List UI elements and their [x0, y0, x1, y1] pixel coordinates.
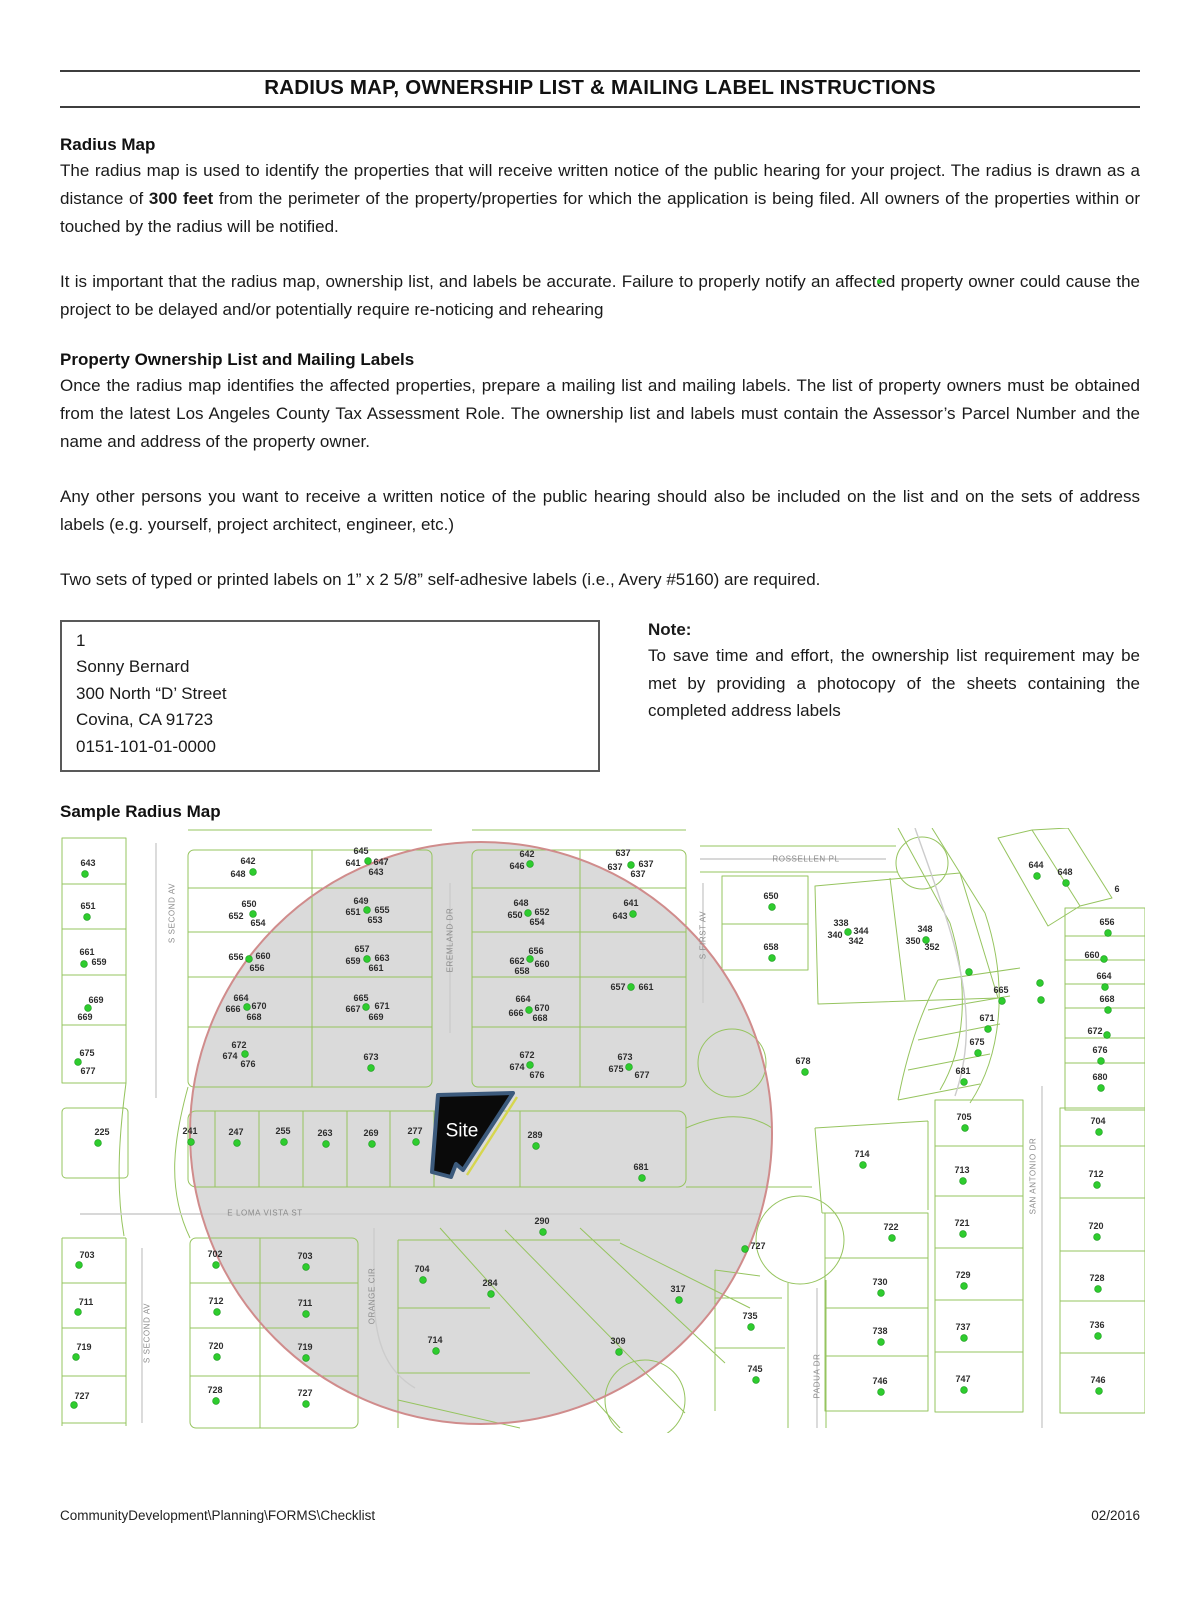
radius-map-para2: It is important that the radius map, own…	[60, 268, 1140, 324]
parcel-label: 712	[208, 1296, 223, 1306]
parcel-label: 712	[1088, 1169, 1103, 1179]
parcel-label: 720	[208, 1341, 223, 1351]
parcel-dot	[413, 1139, 420, 1146]
parcel-dot	[1098, 1058, 1105, 1065]
parcel-dot	[364, 907, 371, 914]
parcel-label: 661	[638, 982, 653, 992]
parcel-label: 681	[633, 1162, 648, 1172]
parcel-label: 255	[275, 1126, 290, 1136]
parcel-label: 673	[617, 1052, 632, 1062]
ownership-heading: Property Ownership List and Mailing Labe…	[60, 350, 1140, 370]
parcel-label: 661	[368, 963, 383, 973]
parcel-label: 344	[853, 926, 868, 936]
parcel-label: 702	[207, 1249, 222, 1259]
ownership-para1: Once the radius map identifies the affec…	[60, 372, 1140, 456]
label-line-number: 1	[76, 628, 584, 655]
parcel-dot	[999, 998, 1006, 1005]
street-label: PADUA DR	[813, 1354, 822, 1399]
parcel-label: 664	[515, 994, 530, 1004]
label-line-apn: 0151-101-01-0000	[76, 734, 584, 761]
parcel-label: 643	[612, 911, 627, 921]
parcel-dot	[71, 1402, 78, 1409]
parcel-label: 643	[368, 867, 383, 877]
parcel-label: 650	[241, 899, 256, 909]
parcel-dot	[488, 1291, 495, 1298]
radius-map-heading: Radius Map	[60, 135, 1140, 155]
footer-date: 02/2016	[1091, 1508, 1140, 1523]
parcel-dot	[303, 1355, 310, 1362]
parcel-label: 672	[231, 1040, 246, 1050]
street-label: S FIRST AV	[699, 911, 708, 959]
parcel-label: 637	[615, 848, 630, 858]
parcel-label: 269	[363, 1128, 378, 1138]
parcel-dot	[845, 929, 852, 936]
parcel-label: 647	[373, 857, 388, 867]
parcel-dot	[84, 914, 91, 921]
street-label: S SECOND AV	[143, 1303, 152, 1363]
document-page: RADIUS MAP, OWNERSHIP LIST & MAILING LAB…	[0, 70, 1200, 1433]
parcel-label: 703	[79, 1250, 94, 1260]
parcel-dot	[1101, 956, 1108, 963]
parcel-dot	[303, 1401, 310, 1408]
parcel-label: 637	[607, 862, 622, 872]
parcel-label: 746	[872, 1376, 887, 1386]
parcel-label: 714	[427, 1335, 442, 1345]
parcel-label: 663	[374, 953, 389, 963]
parcel-dot	[323, 1141, 330, 1148]
parcel-dot	[1094, 1234, 1101, 1241]
ownership-para3: Two sets of typed or printed labels on 1…	[60, 566, 1140, 594]
sample-radius-map: Site S SECOND AVEREMLAND DRS FIRST AVROS…	[60, 828, 1145, 1433]
parcel-dot	[368, 1065, 375, 1072]
parcel-label: 719	[76, 1342, 91, 1352]
parcel-dot	[1105, 1007, 1112, 1014]
parcel-dot	[527, 861, 534, 868]
parcel-dot	[250, 869, 257, 876]
parcel-dot	[242, 1051, 249, 1058]
parcel-label: 648	[1057, 867, 1072, 877]
parcel-dot	[878, 1339, 885, 1346]
para1-post: from the perimeter of the property/prope…	[60, 189, 1140, 236]
parcel-label: 660	[534, 959, 549, 969]
parcel-label: 714	[854, 1149, 869, 1159]
parcel-label: 670	[251, 1001, 266, 1011]
parcel-dot	[1095, 1286, 1102, 1293]
parcel-dot	[234, 1140, 241, 1147]
parcel-label: 646	[509, 861, 524, 871]
parcel-label: 642	[519, 849, 534, 859]
parcel-label: 674	[509, 1062, 524, 1072]
parcel-label: 660	[1084, 950, 1099, 960]
parcel-label: 263	[317, 1128, 332, 1138]
parcel-label: 721	[954, 1218, 969, 1228]
parcel-label: 637	[638, 859, 653, 869]
street-label: EREMLAND DR	[446, 908, 455, 973]
parcel-label: 678	[795, 1056, 810, 1066]
parcel-dot	[960, 1231, 967, 1238]
parcel-label: 309	[610, 1336, 625, 1346]
parcel-dot	[860, 1162, 867, 1169]
parcel-dot	[742, 1246, 749, 1253]
parcel-dot	[1098, 1085, 1105, 1092]
parcel-label: 654	[529, 917, 544, 927]
page-title: RADIUS MAP, OWNERSHIP LIST & MAILING LAB…	[60, 72, 1140, 106]
parcel-dot	[73, 1354, 80, 1361]
parcel-label: 648	[513, 898, 528, 908]
parcel-label: 644	[1028, 860, 1043, 870]
parcel-dot	[1096, 1388, 1103, 1395]
parcel-label: 719	[297, 1342, 312, 1352]
label-line-city: Covina, CA 91723	[76, 707, 584, 734]
sample-radius-map-heading: Sample Radius Map	[60, 802, 1140, 822]
parcel-label: 652	[534, 907, 549, 917]
parcel-dot	[250, 911, 257, 918]
parcel-dot	[889, 1235, 896, 1242]
parcel-dot	[923, 937, 930, 944]
parcel-label: 658	[514, 966, 529, 976]
parcel-label: 654	[250, 918, 265, 928]
parcel-label: 727	[750, 1241, 765, 1251]
parcel-dot	[365, 858, 372, 865]
parcel-label: 651	[80, 901, 95, 911]
parcel-label: 747	[955, 1374, 970, 1384]
parcel-label: 745	[747, 1364, 762, 1374]
parcel-label: 736	[1089, 1320, 1104, 1330]
parcel-label: 713	[954, 1165, 969, 1175]
parcel-dot	[214, 1354, 221, 1361]
parcel-dot	[76, 1262, 83, 1269]
parcel-label: 668	[246, 1012, 261, 1022]
parcel-label: 656	[1099, 917, 1114, 927]
parcel-dot	[246, 956, 253, 963]
parcel-label: 340	[827, 930, 842, 940]
parcel-dot	[966, 969, 973, 976]
parcel-dot	[1038, 997, 1045, 1004]
parcel-label: 666	[225, 1004, 240, 1014]
parcel-label: 676	[529, 1070, 544, 1080]
parcel-label: 350	[905, 936, 920, 946]
note-heading: Note:	[648, 620, 1140, 640]
parcel-dot	[85, 1005, 92, 1012]
parcel-dot	[81, 961, 88, 968]
parcel-label: 722	[883, 1222, 898, 1232]
parcel-label: 677	[80, 1066, 95, 1076]
street-label: ORANGE CIR	[368, 1268, 377, 1325]
parcel-dot	[364, 956, 371, 963]
parcel-dot	[82, 871, 89, 878]
parcel-label: 680	[1092, 1072, 1107, 1082]
parcel-dot	[616, 1349, 623, 1356]
parcel-label: 666	[508, 1008, 523, 1018]
parcel-label: 676	[240, 1059, 255, 1069]
parcel-label: 656	[528, 946, 543, 956]
parcel-label: 665	[993, 985, 1008, 995]
parcel-label: 727	[297, 1388, 312, 1398]
parcel-dot	[213, 1398, 220, 1405]
parcel-label: 674	[222, 1051, 237, 1061]
parcel-label: 668	[532, 1013, 547, 1023]
parcel-dot	[526, 1007, 533, 1014]
parcel-label: 704	[414, 1264, 429, 1274]
parcel-label: 676	[1092, 1045, 1107, 1055]
radius-map-para1: The radius map is used to identify the p…	[60, 157, 1140, 241]
parcel-dot	[753, 1377, 760, 1384]
parcel-dot	[626, 1064, 633, 1071]
parcel-label: 737	[955, 1322, 970, 1332]
parcel-dot	[1063, 880, 1070, 887]
label-line-street: 300 North “D’ Street	[76, 681, 584, 708]
parcel-dot	[628, 984, 635, 991]
parcel-label: 665	[353, 993, 368, 1003]
parcel-label: 659	[91, 957, 106, 967]
parcel-dot	[369, 1141, 376, 1148]
parcel-label: 289	[527, 1130, 542, 1140]
parcel-dot	[878, 1290, 885, 1297]
parcel-label: 656	[249, 963, 264, 973]
label-and-note-row: 1 Sonny Bernard 300 North “D’ Street Cov…	[60, 620, 1140, 773]
title-rule-bottom	[60, 106, 1140, 108]
parcel-dot	[961, 1335, 968, 1342]
parcel-label: 637	[630, 869, 645, 879]
parcel-label: 641	[623, 898, 638, 908]
parcel-dot	[985, 1026, 992, 1033]
parcel-label: 664	[233, 993, 248, 1003]
parcel-label: 677	[634, 1070, 649, 1080]
street-label: S SECOND AV	[168, 883, 177, 943]
parcel-label: 338	[833, 918, 848, 928]
parcel-label: 641	[345, 858, 360, 868]
para1-bold: 300 feet	[149, 189, 213, 208]
ownership-para2: Any other persons you want to receive a …	[60, 483, 1140, 539]
parcel-label: 727	[74, 1391, 89, 1401]
radius-map-svg: Site S SECOND AVEREMLAND DRS FIRST AVROS…	[60, 828, 1145, 1433]
parcel-dot	[1105, 930, 1112, 937]
parcel-label: 735	[742, 1311, 757, 1321]
parcel-dot	[540, 1229, 547, 1236]
parcel-label: 670	[534, 1003, 549, 1013]
parcel-dot	[961, 1387, 968, 1394]
parcel-label: 6	[1114, 884, 1119, 894]
parcel-dot	[1037, 980, 1044, 987]
parcel-label: 711	[79, 1297, 94, 1307]
parcel-dot	[802, 1069, 809, 1076]
parcel-label: 653	[367, 915, 382, 925]
parcel-dot	[1094, 1182, 1101, 1189]
parcel-dot	[676, 1297, 683, 1304]
parcel-label: 650	[763, 891, 778, 901]
parcel-label: 711	[298, 1298, 313, 1308]
parcel-dot	[962, 1125, 969, 1132]
parcel-label: 664	[1096, 971, 1111, 981]
parcel-label: 675	[79, 1048, 94, 1058]
parcel-dot	[975, 1050, 982, 1057]
parcel-label: 277	[407, 1126, 422, 1136]
parcel-dot	[281, 1139, 288, 1146]
parcel-label: 348	[917, 924, 932, 934]
parcel-label: 652	[228, 911, 243, 921]
parcel-label: 247	[228, 1127, 243, 1137]
parcel-dot	[75, 1309, 82, 1316]
parcel-label: 225	[94, 1127, 109, 1137]
street-label: ROSSELLEN PL	[772, 855, 839, 864]
note-body: To save time and effort, the ownership l…	[648, 642, 1140, 726]
parcel-dot	[1095, 1333, 1102, 1340]
parcel-label: 669	[77, 1012, 92, 1022]
parcel-dot	[961, 1283, 968, 1290]
parcel-label: 746	[1090, 1375, 1105, 1385]
stray-green-dot	[877, 279, 882, 284]
parcel-label: 703	[297, 1251, 312, 1261]
site-label: Site	[446, 1121, 479, 1142]
parcel-label: 671	[979, 1013, 994, 1023]
parcel-dot	[525, 910, 532, 917]
parcel-label: 669	[368, 1012, 383, 1022]
parcel-label: 728	[1089, 1273, 1104, 1283]
street-label: E LOMA VISTA ST	[227, 1209, 303, 1218]
parcel-label: 317	[670, 1284, 685, 1294]
parcel-label: 669	[88, 995, 103, 1005]
parcel-label: 241	[182, 1126, 197, 1136]
parcel-dot	[214, 1309, 221, 1316]
parcel-label: 650	[507, 910, 522, 920]
sample-mailing-label-box: 1 Sonny Bernard 300 North “D’ Street Cov…	[60, 620, 600, 773]
parcel-label: 738	[872, 1326, 887, 1336]
parcel-label: 648	[230, 869, 245, 879]
parcel-label: 705	[956, 1112, 971, 1122]
parcel-label: 704	[1090, 1116, 1105, 1126]
parcel-dot	[748, 1324, 755, 1331]
parcel-label: 284	[482, 1278, 497, 1288]
label-line-name: Sonny Bernard	[76, 654, 584, 681]
parcel-dot	[527, 1062, 534, 1069]
parcel-label: 728	[207, 1385, 222, 1395]
parcel-dot	[769, 904, 776, 911]
parcel-dot	[363, 1004, 370, 1011]
parcel-dot	[1034, 873, 1041, 880]
street-label: SAN ANTONIO DR	[1029, 1138, 1038, 1215]
parcel-label: 672	[519, 1050, 534, 1060]
note-column: Note: To save time and effort, the owner…	[612, 620, 1140, 726]
parcel-label: 656	[228, 952, 243, 962]
parcel-label: 661	[79, 947, 94, 957]
parcel-label: 657	[354, 944, 369, 954]
parcel-dot	[533, 1143, 540, 1150]
parcel-label: 660	[255, 951, 270, 961]
parcel-label: 290	[534, 1216, 549, 1226]
parcel-label: 662	[509, 956, 524, 966]
parcel-dot	[639, 1175, 646, 1182]
parcel-label: 672	[1087, 1026, 1102, 1036]
parcel-label: 655	[374, 905, 389, 915]
parcel-dot	[1096, 1129, 1103, 1136]
parcel-label: 642	[240, 856, 255, 866]
parcel-dot	[188, 1139, 195, 1146]
parcel-label: 730	[872, 1277, 887, 1287]
parcel-label: 671	[374, 1001, 389, 1011]
parcel-dot	[630, 911, 637, 918]
parcel-dot	[960, 1178, 967, 1185]
parcel-dot	[213, 1262, 220, 1269]
footer-path: CommunityDevelopment\Planning\FORMS\Chec…	[60, 1508, 375, 1523]
parcel-dot	[95, 1140, 102, 1147]
parcel-label: 658	[763, 942, 778, 952]
parcel-label: 681	[955, 1066, 970, 1076]
parcel-dot	[75, 1059, 82, 1066]
parcel-dot	[628, 862, 635, 869]
parcel-label: 673	[363, 1052, 378, 1062]
parcel-label: 643	[80, 858, 95, 868]
parcel-label: 649	[353, 896, 368, 906]
parcel-dot	[244, 1004, 251, 1011]
parcel-dot	[433, 1348, 440, 1355]
parcel-label: 729	[955, 1270, 970, 1280]
parcel-dot	[303, 1264, 310, 1271]
parcel-dot	[303, 1311, 310, 1318]
parcel-label: 659	[345, 956, 360, 966]
parcel-label: 720	[1088, 1221, 1103, 1231]
parcel-dot	[420, 1277, 427, 1284]
parcel-dot	[1104, 1032, 1111, 1039]
parcel-dot	[1102, 984, 1109, 991]
parcel-label: 651	[345, 907, 360, 917]
parcel-label: 675	[608, 1064, 623, 1074]
parcel-dot	[527, 956, 534, 963]
parcel-label: 657	[610, 982, 625, 992]
parcel-label: 675	[969, 1037, 984, 1047]
parcel-label: 342	[848, 936, 863, 946]
parcel-dot	[961, 1079, 968, 1086]
parcel-label: 645	[353, 846, 368, 856]
parcel-label: 667	[345, 1004, 360, 1014]
page-footer: CommunityDevelopment\Planning\FORMS\Chec…	[60, 1508, 1140, 1523]
parcel-label: 668	[1099, 994, 1114, 1004]
parcel-dot	[878, 1389, 885, 1396]
parcel-dot	[769, 955, 776, 962]
